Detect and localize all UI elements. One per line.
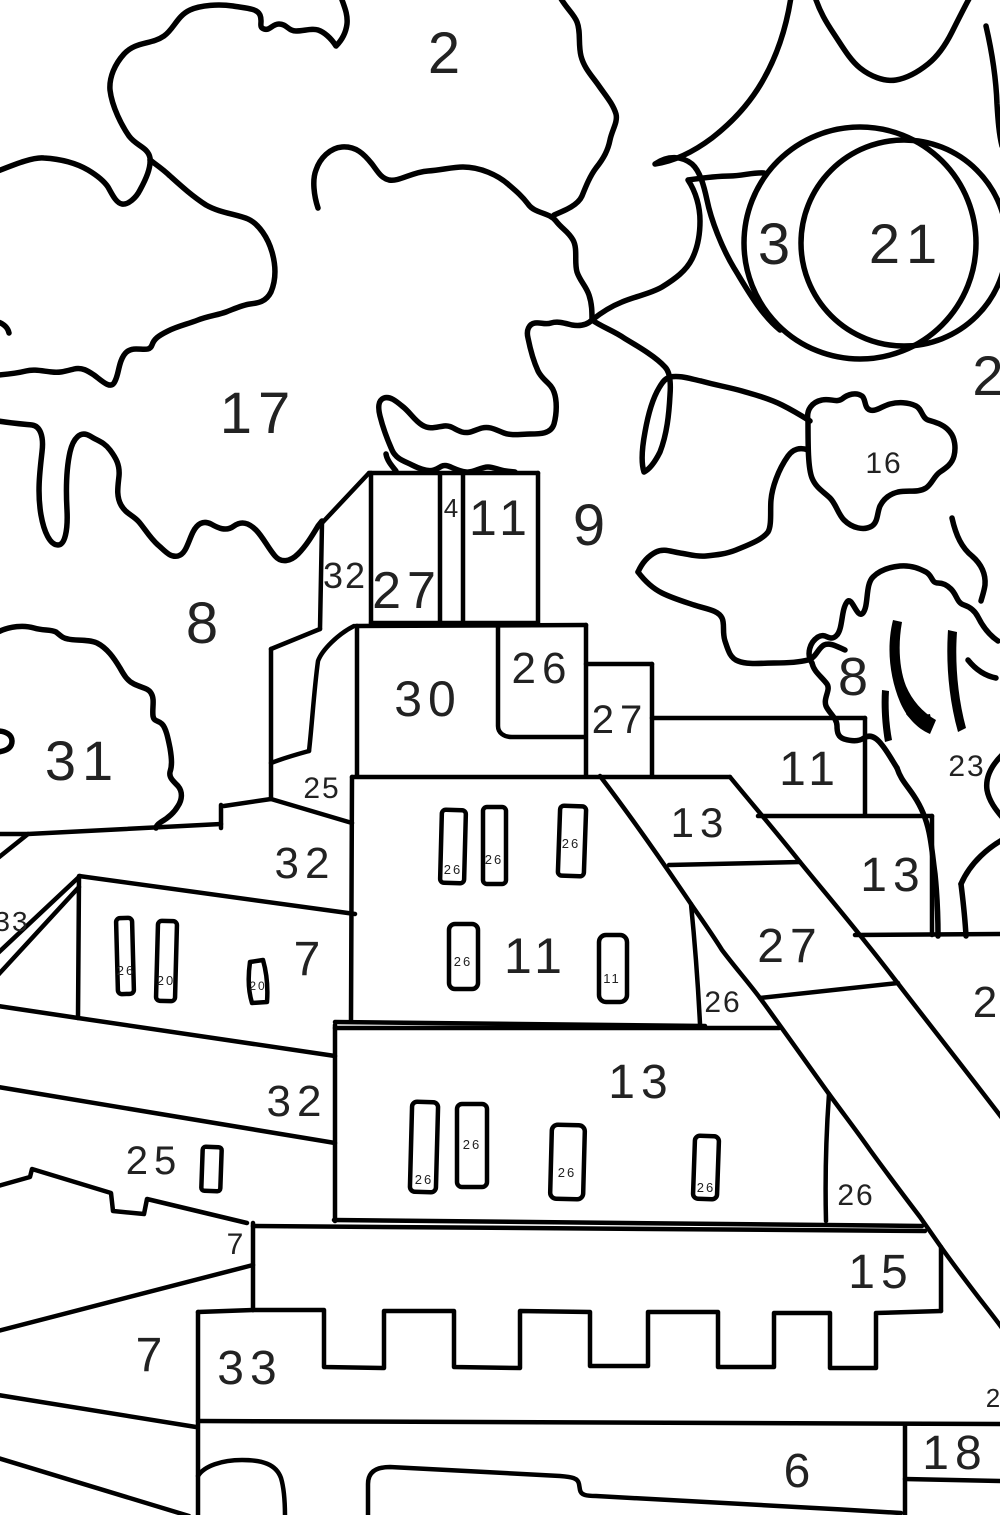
svg-text:15: 15 (848, 1246, 913, 1299)
svg-text:27: 27 (592, 698, 649, 742)
svg-text:32: 32 (323, 555, 367, 596)
svg-text:23: 23 (948, 750, 985, 783)
svg-text:6: 6 (784, 1445, 817, 1498)
svg-text:21: 21 (869, 212, 943, 275)
svg-text:7: 7 (227, 1228, 246, 1261)
svg-text:27: 27 (372, 562, 442, 620)
svg-text:3: 3 (758, 212, 796, 277)
svg-text:26: 26 (837, 1179, 874, 1212)
svg-text:8: 8 (838, 647, 874, 707)
svg-text:26: 26 (117, 963, 135, 978)
svg-text:26: 26 (697, 1180, 715, 1195)
svg-text:26: 26 (415, 1172, 433, 1187)
svg-text:16: 16 (865, 447, 902, 480)
svg-text:26: 26 (463, 1137, 481, 1152)
svg-text:2: 2 (972, 344, 1000, 407)
svg-text:26: 26 (485, 852, 503, 867)
svg-text:9: 9 (573, 493, 611, 558)
svg-text:32: 32 (275, 839, 336, 888)
svg-text:27: 27 (757, 920, 822, 973)
svg-text:2: 2 (428, 21, 466, 86)
svg-text:20: 20 (157, 973, 175, 988)
svg-text:26: 26 (454, 954, 472, 969)
svg-text:31: 31 (45, 729, 119, 792)
svg-text:2: 2 (986, 1383, 1000, 1413)
svg-text:30: 30 (394, 671, 462, 727)
svg-text:26: 26 (512, 644, 573, 693)
svg-text:7: 7 (136, 1329, 169, 1382)
svg-text:33: 33 (217, 1342, 282, 1395)
svg-text:4: 4 (444, 493, 460, 523)
svg-text:20: 20 (249, 979, 266, 993)
svg-text:26: 26 (562, 836, 580, 851)
svg-text:17: 17 (220, 381, 297, 446)
svg-text:7: 7 (294, 933, 327, 986)
svg-text:26: 26 (704, 986, 741, 1019)
svg-text:11: 11 (469, 490, 533, 546)
svg-text:13: 13 (608, 1056, 673, 1109)
svg-text:13: 13 (860, 849, 925, 902)
svg-text:26: 26 (444, 862, 462, 877)
svg-text:11: 11 (779, 743, 841, 796)
svg-text:2: 2 (973, 978, 1000, 1027)
svg-text:26: 26 (558, 1165, 576, 1180)
svg-text:11: 11 (504, 928, 568, 984)
svg-text:11: 11 (603, 971, 621, 986)
svg-text:25: 25 (126, 1139, 183, 1183)
svg-text:33: 33 (0, 906, 30, 937)
svg-text:13: 13 (671, 799, 730, 846)
svg-text:8: 8 (186, 591, 224, 656)
svg-text:25: 25 (303, 772, 340, 805)
svg-text:32: 32 (267, 1077, 328, 1126)
svg-text:18: 18 (922, 1427, 987, 1480)
